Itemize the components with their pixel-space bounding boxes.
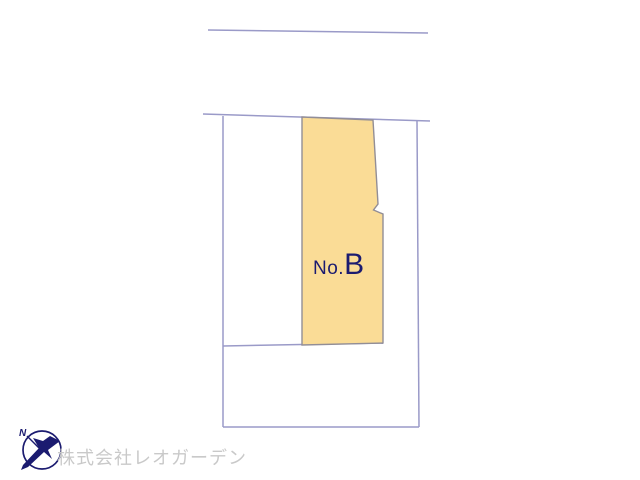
site-plan-canvas bbox=[0, 0, 640, 480]
plot-b-label-prefix: No. bbox=[313, 258, 344, 280]
site-plan-page: No. B N 株式会社レオガーデン bbox=[0, 0, 640, 480]
plot-b-label: No. B bbox=[313, 248, 364, 282]
plot-b-shape bbox=[302, 117, 383, 345]
road-edge-line bbox=[208, 30, 428, 33]
company-name-watermark: 株式会社レオガーデン bbox=[57, 444, 247, 470]
north-label: N bbox=[19, 428, 27, 439]
plot-b-label-letter: B bbox=[344, 248, 364, 282]
block-right-boundary-line bbox=[417, 121, 419, 427]
